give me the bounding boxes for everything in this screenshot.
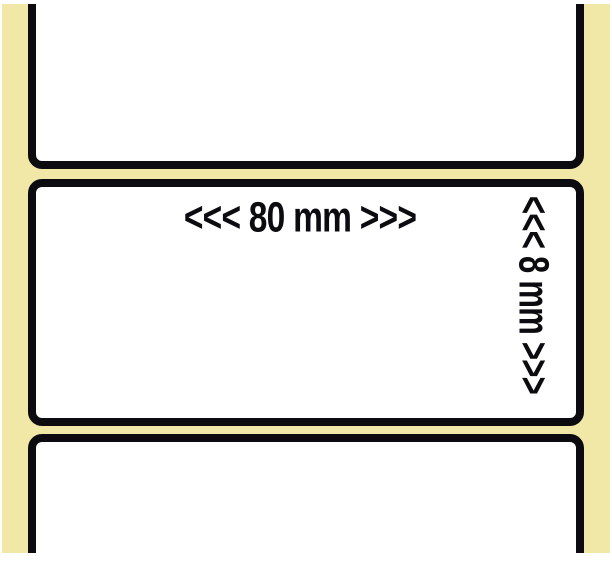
page: { "roll": { "colors": { "backing": "#F1E… [0,0,612,563]
label-bottom [28,434,584,553]
height-dimension-label: <<< 8 mm >>> [512,196,555,394]
backing-paper: <<< 80 mm >>> <<< 8 mm >>> [2,4,610,553]
label-middle: <<< 80 mm >>> <<< 8 mm >>> [28,179,584,426]
label-top [28,4,584,169]
width-dimension-label: <<< 80 mm >>> [184,197,416,240]
